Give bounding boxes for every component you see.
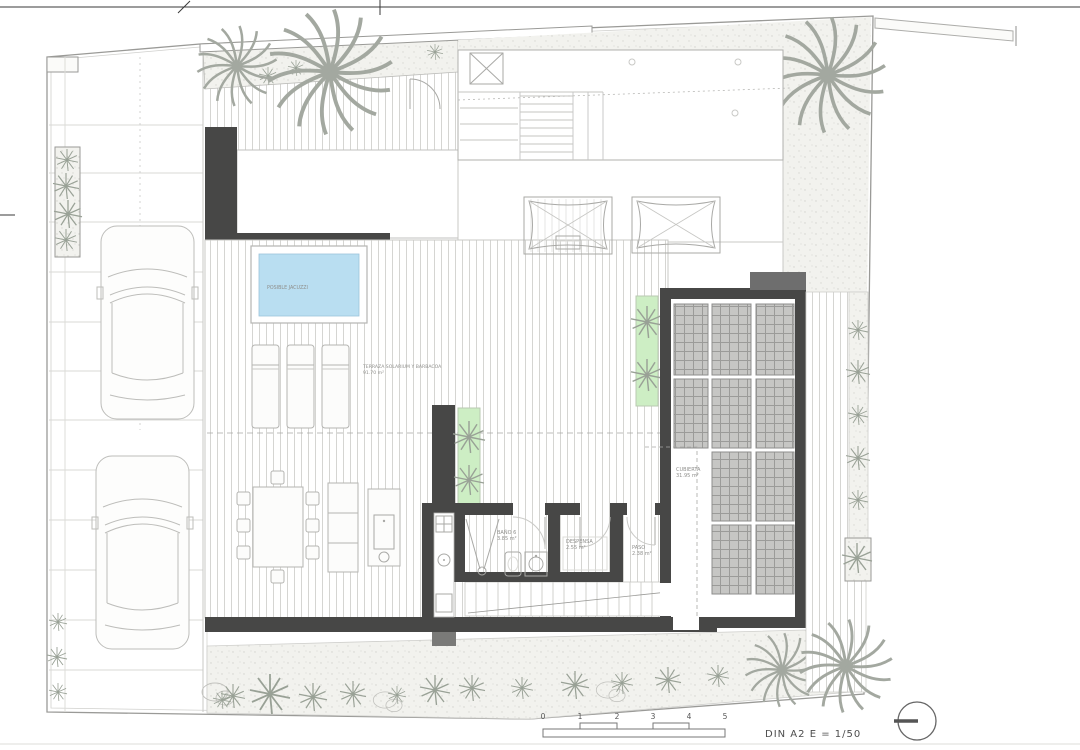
north-symbol: [894, 702, 936, 740]
kitchen-counter: [434, 513, 454, 617]
bano-area: 3.85 m²: [497, 536, 517, 542]
paso-area: 2.38 m²: [632, 551, 652, 557]
door-opening: [673, 616, 699, 630]
sheet-note: DIN A2 E = 1/50: [765, 729, 861, 740]
sun-lounger: [252, 345, 279, 428]
entry-gate: [47, 57, 78, 72]
pool-label: POSIBLE JACUZZI: [267, 285, 308, 291]
scale-tick-4: 4: [687, 712, 692, 721]
cubierta-area: 31.95 m²: [676, 473, 699, 479]
plan-sheet: POSIBLE JACUZZI TERRAZA SOLARIUM Y BARBA…: [0, 0, 1080, 750]
terrace-bottom-wall: [205, 617, 717, 632]
side-planter: [53, 147, 82, 257]
wall-pier: [432, 632, 456, 646]
car-2: [92, 456, 193, 649]
building-roof: [458, 50, 790, 160]
scale-tick-2: 2: [615, 712, 620, 721]
scale-tick-0: 0: [541, 712, 546, 721]
car-1: [97, 226, 198, 419]
bano-name: BAÑO 6: [497, 529, 516, 536]
wall-cap: [750, 272, 806, 290]
scale-tick-3: 3: [651, 712, 656, 721]
jacuzzi-pool: POSIBLE JACUZZI: [251, 246, 367, 323]
scale-tick-1: 1: [578, 712, 583, 721]
dining-table: [253, 487, 303, 567]
skylight: [470, 53, 503, 84]
deck-planter-a: [631, 296, 663, 406]
right-planter-box: [842, 538, 872, 581]
neighbor-wall-strip: [875, 18, 1013, 41]
terrace-area: 91.70 m²: [363, 370, 384, 376]
cubierta-room: CUBIERTA 31.95 m²: [645, 272, 806, 630]
scale-tick-5: 5: [723, 712, 728, 721]
right-strip: [799, 292, 892, 712]
pool-water: [259, 254, 359, 316]
wall-segment: [432, 405, 455, 505]
floor-plan-canvas: POSIBLE JACUZZI TERRAZA SOLARIUM Y BARBA…: [0, 0, 1080, 750]
sun-lounger: [287, 345, 314, 428]
sun-lounger: [322, 345, 349, 428]
terrace-name: TERRAZA SOLARIUM Y BARBACOA: [362, 364, 442, 370]
deck-planter-b: [453, 408, 485, 505]
lower-roof-tier: [237, 150, 462, 238]
despensa-area: 2.55 m²: [566, 545, 586, 551]
garden: [202, 630, 851, 719]
roof-tier: [458, 160, 783, 242]
